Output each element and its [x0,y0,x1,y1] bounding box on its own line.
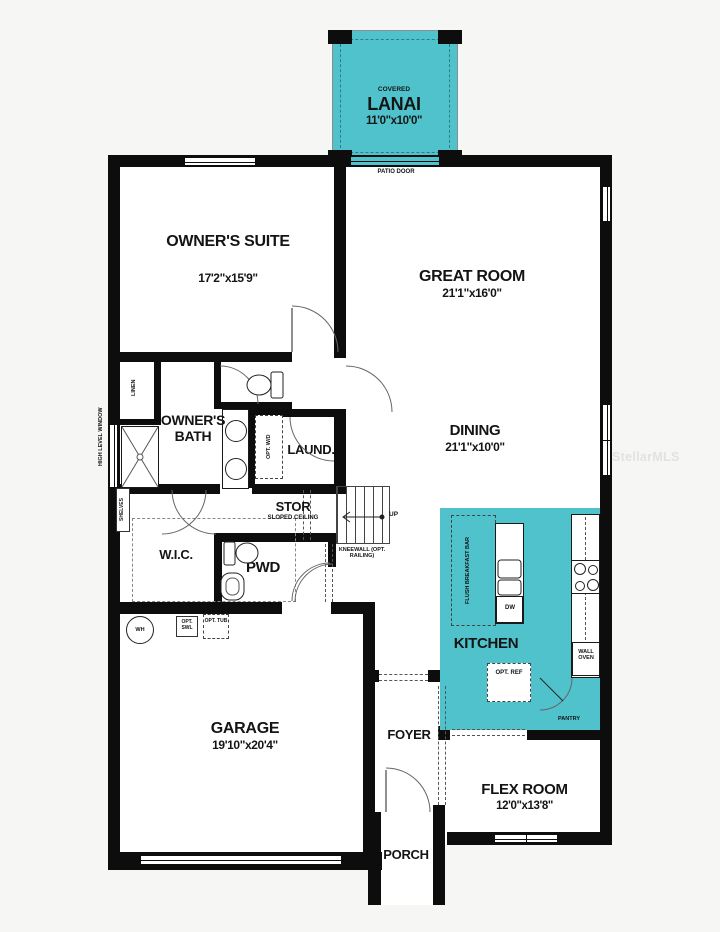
foyer-label: FOYER [377,728,441,743]
cooktop [571,560,600,594]
opt-wd-label: OPT. W/D [263,418,275,476]
breakfast-bar-label: FLUSH BREAKFAST BAR [462,520,474,622]
shelves-label: SHELVES [117,489,129,531]
wall-suite-bath [120,352,292,362]
opt-ref-box [487,663,531,702]
flex-room-dims: 12'0"x13'8" [447,800,602,813]
garage-label: GARAGE [155,720,335,738]
kitchen-label: KITCHEN [443,636,529,653]
up-label: UP [389,511,407,518]
floor-plan: COVERED LANAI 11'0"x10'0" FLUSH BREAKFAS… [0,0,720,932]
bg-patch [445,845,615,857]
porch-label: PORCH [378,848,434,863]
dining-dims: 21'1"x10'0" [395,441,555,454]
patio-door [350,156,440,166]
stor-label: STOR [258,500,328,515]
wall-toilet-bottom [214,402,292,409]
water-heater-label: WH [126,627,154,633]
opt-tub-label: OPT. TUB [203,619,229,625]
garage-door [140,855,342,865]
great-room-dims: 21'1"x16'0" [382,287,562,300]
wall-stor-top [252,484,346,494]
wall-garage-right [363,602,375,854]
kneewall-label: KNEEWALL (OPT. RAILING) [333,547,391,559]
kneewall-line [325,544,333,602]
window-greatroom [602,186,611,222]
lanai-post [438,30,462,44]
wall-toilet-left [214,352,221,408]
wall-oven-label: WALL OVEN [573,649,599,661]
opt-ref-label: OPT. REF [487,670,531,677]
linen-label: LINEN [128,360,140,416]
pantry-label: PANTRY [540,716,598,722]
foyer-opening [379,674,428,681]
laundry-label: LAUND. [280,443,342,458]
owners-bath-label: OWNER'S BATH [149,413,237,444]
garage-dims: 19'10"x20'4" [155,739,335,752]
pwd-label: PWD [233,560,293,577]
wall-foyer-stub-left [363,670,379,682]
wall-exterior-right [600,155,612,845]
flex-room-label: FLEX ROOM [447,782,602,799]
stellar-mls-watermark: StellarMLS [612,450,716,464]
flex-opening-left [438,686,446,805]
lanai-prefix-label: COVERED [332,86,456,93]
wall-vanity [248,409,255,488]
window-high-level [109,424,118,488]
lanai-post [328,30,352,44]
stor-note: SLOPED CEILING [252,515,334,522]
wall-flex-left-stub [433,805,445,832]
owners-suite-label: OWNER'S SUITE [152,233,304,251]
dining-label: DINING [395,423,555,440]
lanai-dims-label: 11'0"x10'0" [332,115,456,128]
window-suite [184,157,256,166]
opt-swl-label: OPT. SWL [176,620,198,631]
patio-door-label: PATIO DOOR [352,169,440,176]
window-flex-double [494,834,558,843]
wall-garage-top-a [108,602,282,614]
owners-suite-dims: 17'2"x15'9" [152,272,304,285]
wic-label: W.I.C. [146,548,206,563]
dishwasher-label: DW [497,605,523,612]
staircase [336,486,390,544]
high-level-window-label: HIGH LEVEL WINDOW [95,385,107,489]
wall-suite-east-upper [334,155,346,358]
window-dining-double [602,404,611,476]
great-room-label: GREAT ROOM [382,268,562,286]
lanai-name-label: LANAI [332,94,456,114]
flex-opening-top [452,729,525,736]
